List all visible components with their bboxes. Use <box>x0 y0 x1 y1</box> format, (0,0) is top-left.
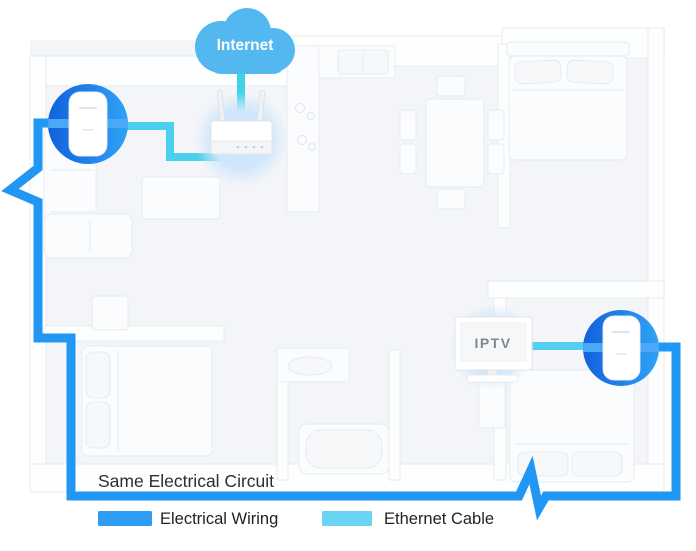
chair <box>437 76 465 96</box>
powerline-adapter-left <box>48 84 128 164</box>
chair <box>488 144 504 174</box>
adapter-logo <box>79 107 97 109</box>
shelf-right-middle <box>488 281 664 298</box>
adapter-body <box>603 316 640 380</box>
electrical-wiring-swatch <box>98 511 152 526</box>
chair <box>400 144 416 174</box>
ethernet-cable-swatch <box>322 511 372 526</box>
powerline-network-diagram: IPTV Internet Same Electrical Circuit El… <box>0 0 696 551</box>
electrical-wiring-label: Electrical Wiring <box>160 510 278 528</box>
headboard <box>507 42 629 56</box>
bed-bottom-left <box>82 346 212 456</box>
adapter-led <box>82 129 94 131</box>
floor-plan <box>30 28 664 492</box>
dining-table <box>426 99 484 187</box>
pillow <box>86 402 110 448</box>
bed-top-right <box>507 42 629 160</box>
adapter-body <box>69 92 107 156</box>
pillow <box>572 452 622 476</box>
chair <box>437 189 465 209</box>
internet-cloud: Internet <box>195 8 295 74</box>
pillow <box>566 60 613 84</box>
chair <box>400 110 416 140</box>
tv-cabinet <box>92 296 128 330</box>
bathtub-inner <box>306 430 382 468</box>
legend: Electrical Wiring Ethernet Cable <box>98 510 494 528</box>
pillow <box>86 352 110 398</box>
powerline-adapter-right <box>583 310 659 386</box>
iptv-label: IPTV <box>474 335 511 351</box>
wall-right <box>648 28 664 480</box>
same-circuit-label: Same Electrical Circuit <box>98 471 274 491</box>
ethernet-cable-label: Ethernet Cable <box>384 510 494 528</box>
coffee-table <box>142 177 220 219</box>
adapter-led <box>615 353 627 355</box>
internet-label: Internet <box>217 37 274 54</box>
sink-basin <box>288 357 332 375</box>
wall-bathroom-right <box>389 350 400 480</box>
chair <box>488 110 504 140</box>
adapter-logo <box>612 331 630 333</box>
pillow <box>514 60 561 84</box>
tv-base <box>467 375 518 382</box>
diagram-canvas: IPTV Internet Same Electrical Circuit El… <box>0 0 696 551</box>
